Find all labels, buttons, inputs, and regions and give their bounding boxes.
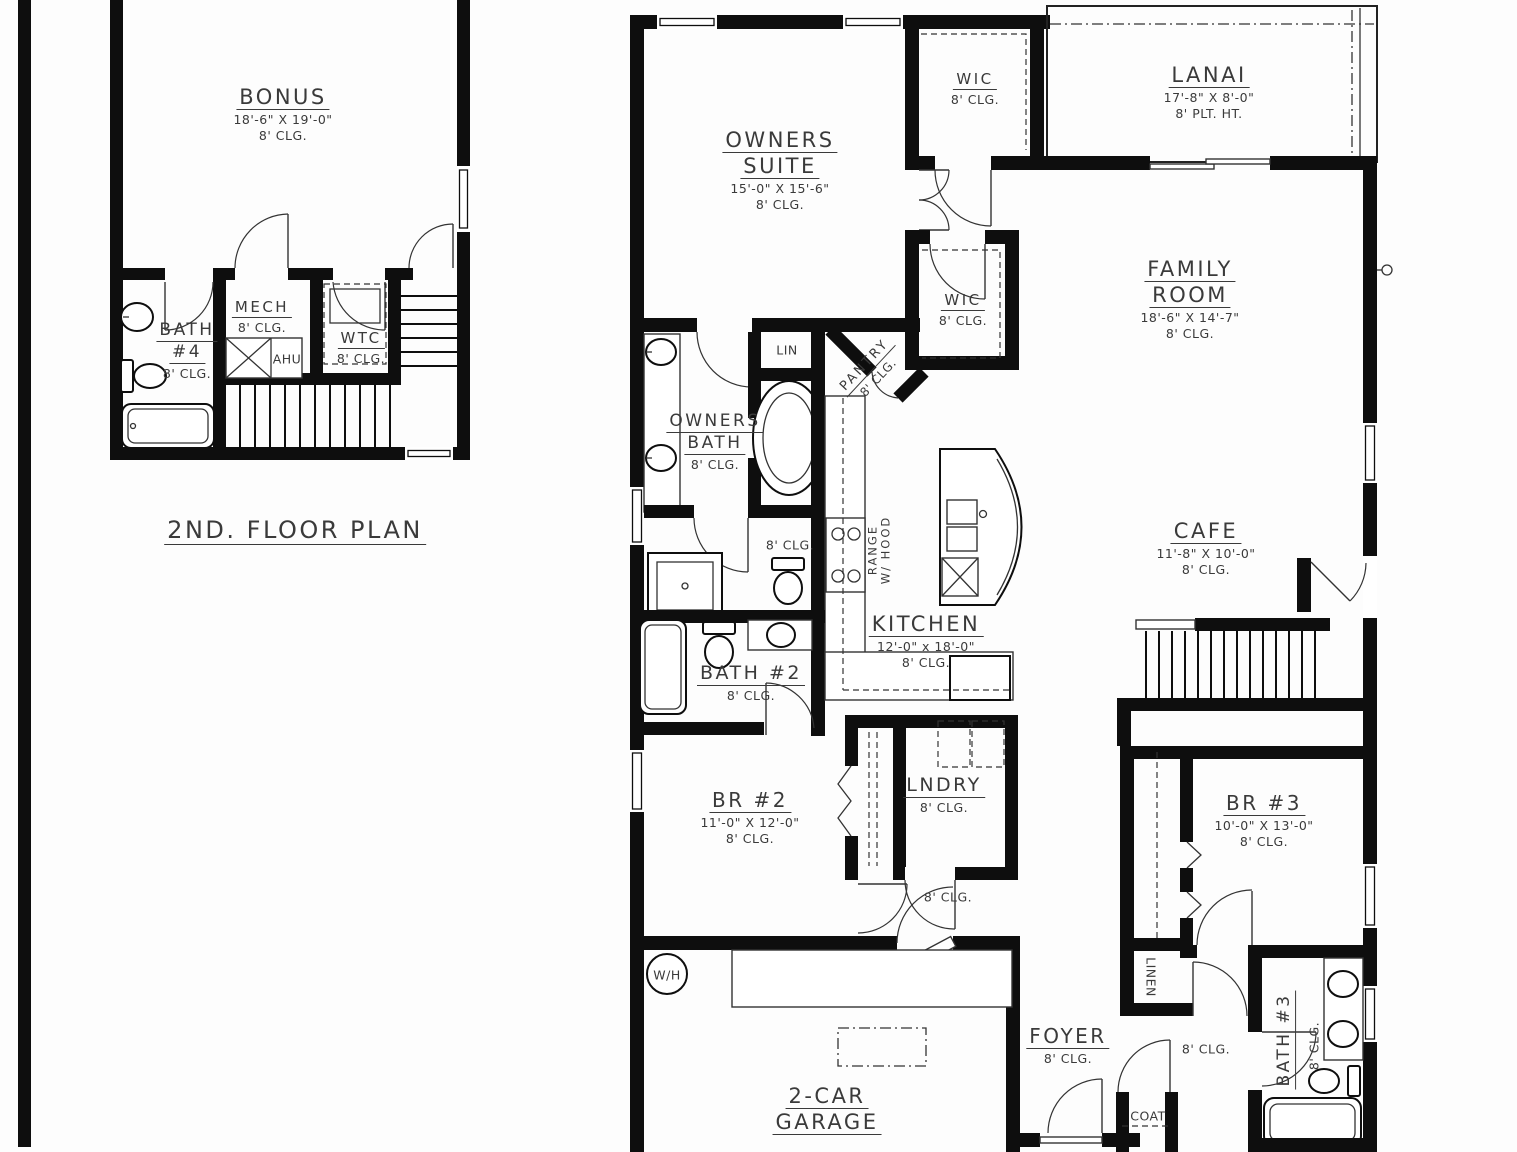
room-label-wic-top: WIC 8' CLG. — [951, 72, 999, 108]
toilet-tank-icon — [1348, 1066, 1360, 1096]
door-swing — [1048, 1079, 1102, 1133]
room-label-owners-bath: OWNERS BATH 8' CLG. — [666, 413, 763, 473]
window — [633, 490, 642, 542]
entry-door-sill — [1040, 1137, 1102, 1143]
room-label-kitchen: KITCHEN 12'-0" x 18'-0" 8' CLG. — [869, 613, 984, 672]
window — [1366, 426, 1375, 480]
wic-top-walls — [905, 15, 1044, 226]
bifold-door-icon — [1187, 842, 1201, 868]
bifold-door-icon — [838, 766, 851, 836]
room-label-garage: 2-CAR GARAGE — [773, 1085, 882, 1137]
toilet-icon — [1309, 1069, 1339, 1093]
sheet-border — [18, 0, 31, 1147]
window — [633, 753, 642, 809]
stairs — [1146, 631, 1315, 698]
room-label-foyer: FOYER 8' CLG. — [1026, 1026, 1109, 1067]
room-label-bonus: BONUS 18'-6" X 19'-0" 8' CLG. — [233, 86, 332, 145]
toilet-tank-icon — [121, 360, 133, 392]
sink-icon — [1328, 971, 1358, 997]
pantry-wall — [898, 372, 924, 398]
window — [1366, 989, 1375, 1039]
door-swing — [697, 332, 752, 387]
door-swing — [409, 224, 453, 268]
window — [460, 170, 468, 228]
room-label-lanai: LANAI 17'-8" X 8'-0" 8' PLT. HT. — [1164, 64, 1255, 123]
window — [408, 451, 450, 457]
label-hall-bedrooms-clg: 8' CLG. — [924, 887, 972, 906]
room-label-family-room: FAMILY ROOM 18'-6" X 14'-7" 8' CLG. — [1140, 258, 1239, 343]
room-label-bath3: BATH #3 — [1276, 990, 1298, 1089]
window — [846, 19, 900, 26]
second-floor-plan-title: 2ND. FLOOR PLAN — [164, 518, 426, 547]
door-swing — [1193, 962, 1247, 1016]
room-label-wtc: WTC 8' CLG. — [337, 331, 385, 367]
label-hall-foyer-clg: 8' CLG. — [1182, 1039, 1230, 1058]
toilet-tank-icon — [772, 558, 804, 570]
toilet-tank-icon — [703, 622, 735, 634]
garage-storage-counter — [732, 950, 1012, 1007]
label-linen: LINEN — [1143, 957, 1162, 997]
room-label-lndry: LNDRY 8' CLG. — [903, 776, 985, 816]
island-sink-icon — [947, 527, 977, 551]
label-ahu: AHU — [273, 349, 302, 368]
room-label-br3: BR #3 10'-0" X 13'-0" 8' CLG. — [1214, 793, 1313, 851]
island-sink-icon — [947, 500, 977, 524]
label-range-hood: RANGE W/ HOOD — [866, 516, 891, 585]
label-water-heater: W/H — [653, 965, 680, 984]
bathtub-icon — [640, 620, 686, 714]
second-floor-walls — [110, 0, 470, 460]
sliding-door — [1150, 164, 1214, 169]
bifold-door-icon — [1187, 892, 1201, 918]
shower-icon — [648, 553, 722, 619]
sink-icon — [1328, 1021, 1358, 1047]
door-swing — [935, 170, 991, 226]
attic-access — [838, 1028, 926, 1066]
door-swing — [1118, 1040, 1170, 1092]
label-bath3-clg: 8' CLG. — [1304, 1022, 1323, 1070]
door-swing — [919, 200, 949, 230]
room-label-wic-mid: WIC 8' CLG. — [939, 293, 987, 329]
window — [660, 19, 714, 26]
cafe-door-stairs — [1117, 558, 1366, 746]
stair-rail — [1136, 620, 1195, 629]
closet-rod — [869, 732, 877, 866]
sliding-door — [1206, 159, 1270, 164]
toilet-icon — [774, 572, 802, 604]
door-swing — [919, 170, 949, 200]
room-label-owners-suite: OWNERS SUITE 15'-0" X 15'-6" 8' CLG. — [722, 129, 837, 214]
outlet-icon — [1382, 265, 1392, 275]
room-label-bath2: BATH #2 8' CLG. — [697, 664, 805, 704]
sink-icon — [767, 623, 795, 647]
room-label-mech: MECH 8' CLG. — [232, 300, 292, 336]
family-room-symbols — [1377, 265, 1392, 275]
window — [1366, 867, 1375, 925]
floor-plan-sheet: BONUS 18'-6" X 19'-0" 8' CLG. BATH #4 8'… — [0, 0, 1517, 1152]
door-swing — [235, 214, 288, 268]
label-coat: COAT — [1130, 1106, 1166, 1125]
room-label-bath4: BATH #4 8' CLG. — [156, 322, 217, 382]
range-icon — [826, 518, 865, 592]
label-owners-wc-clg: 8' CLG. — [766, 535, 814, 554]
room-label-br2: BR #2 11'-0" X 12'-0" 8' CLG. — [700, 790, 799, 848]
door-swing — [1197, 890, 1252, 945]
room-label-cafe: CAFE 11'-8" X 10'-0" 8' CLG. — [1156, 520, 1255, 579]
label-lin: LIN — [776, 340, 798, 359]
